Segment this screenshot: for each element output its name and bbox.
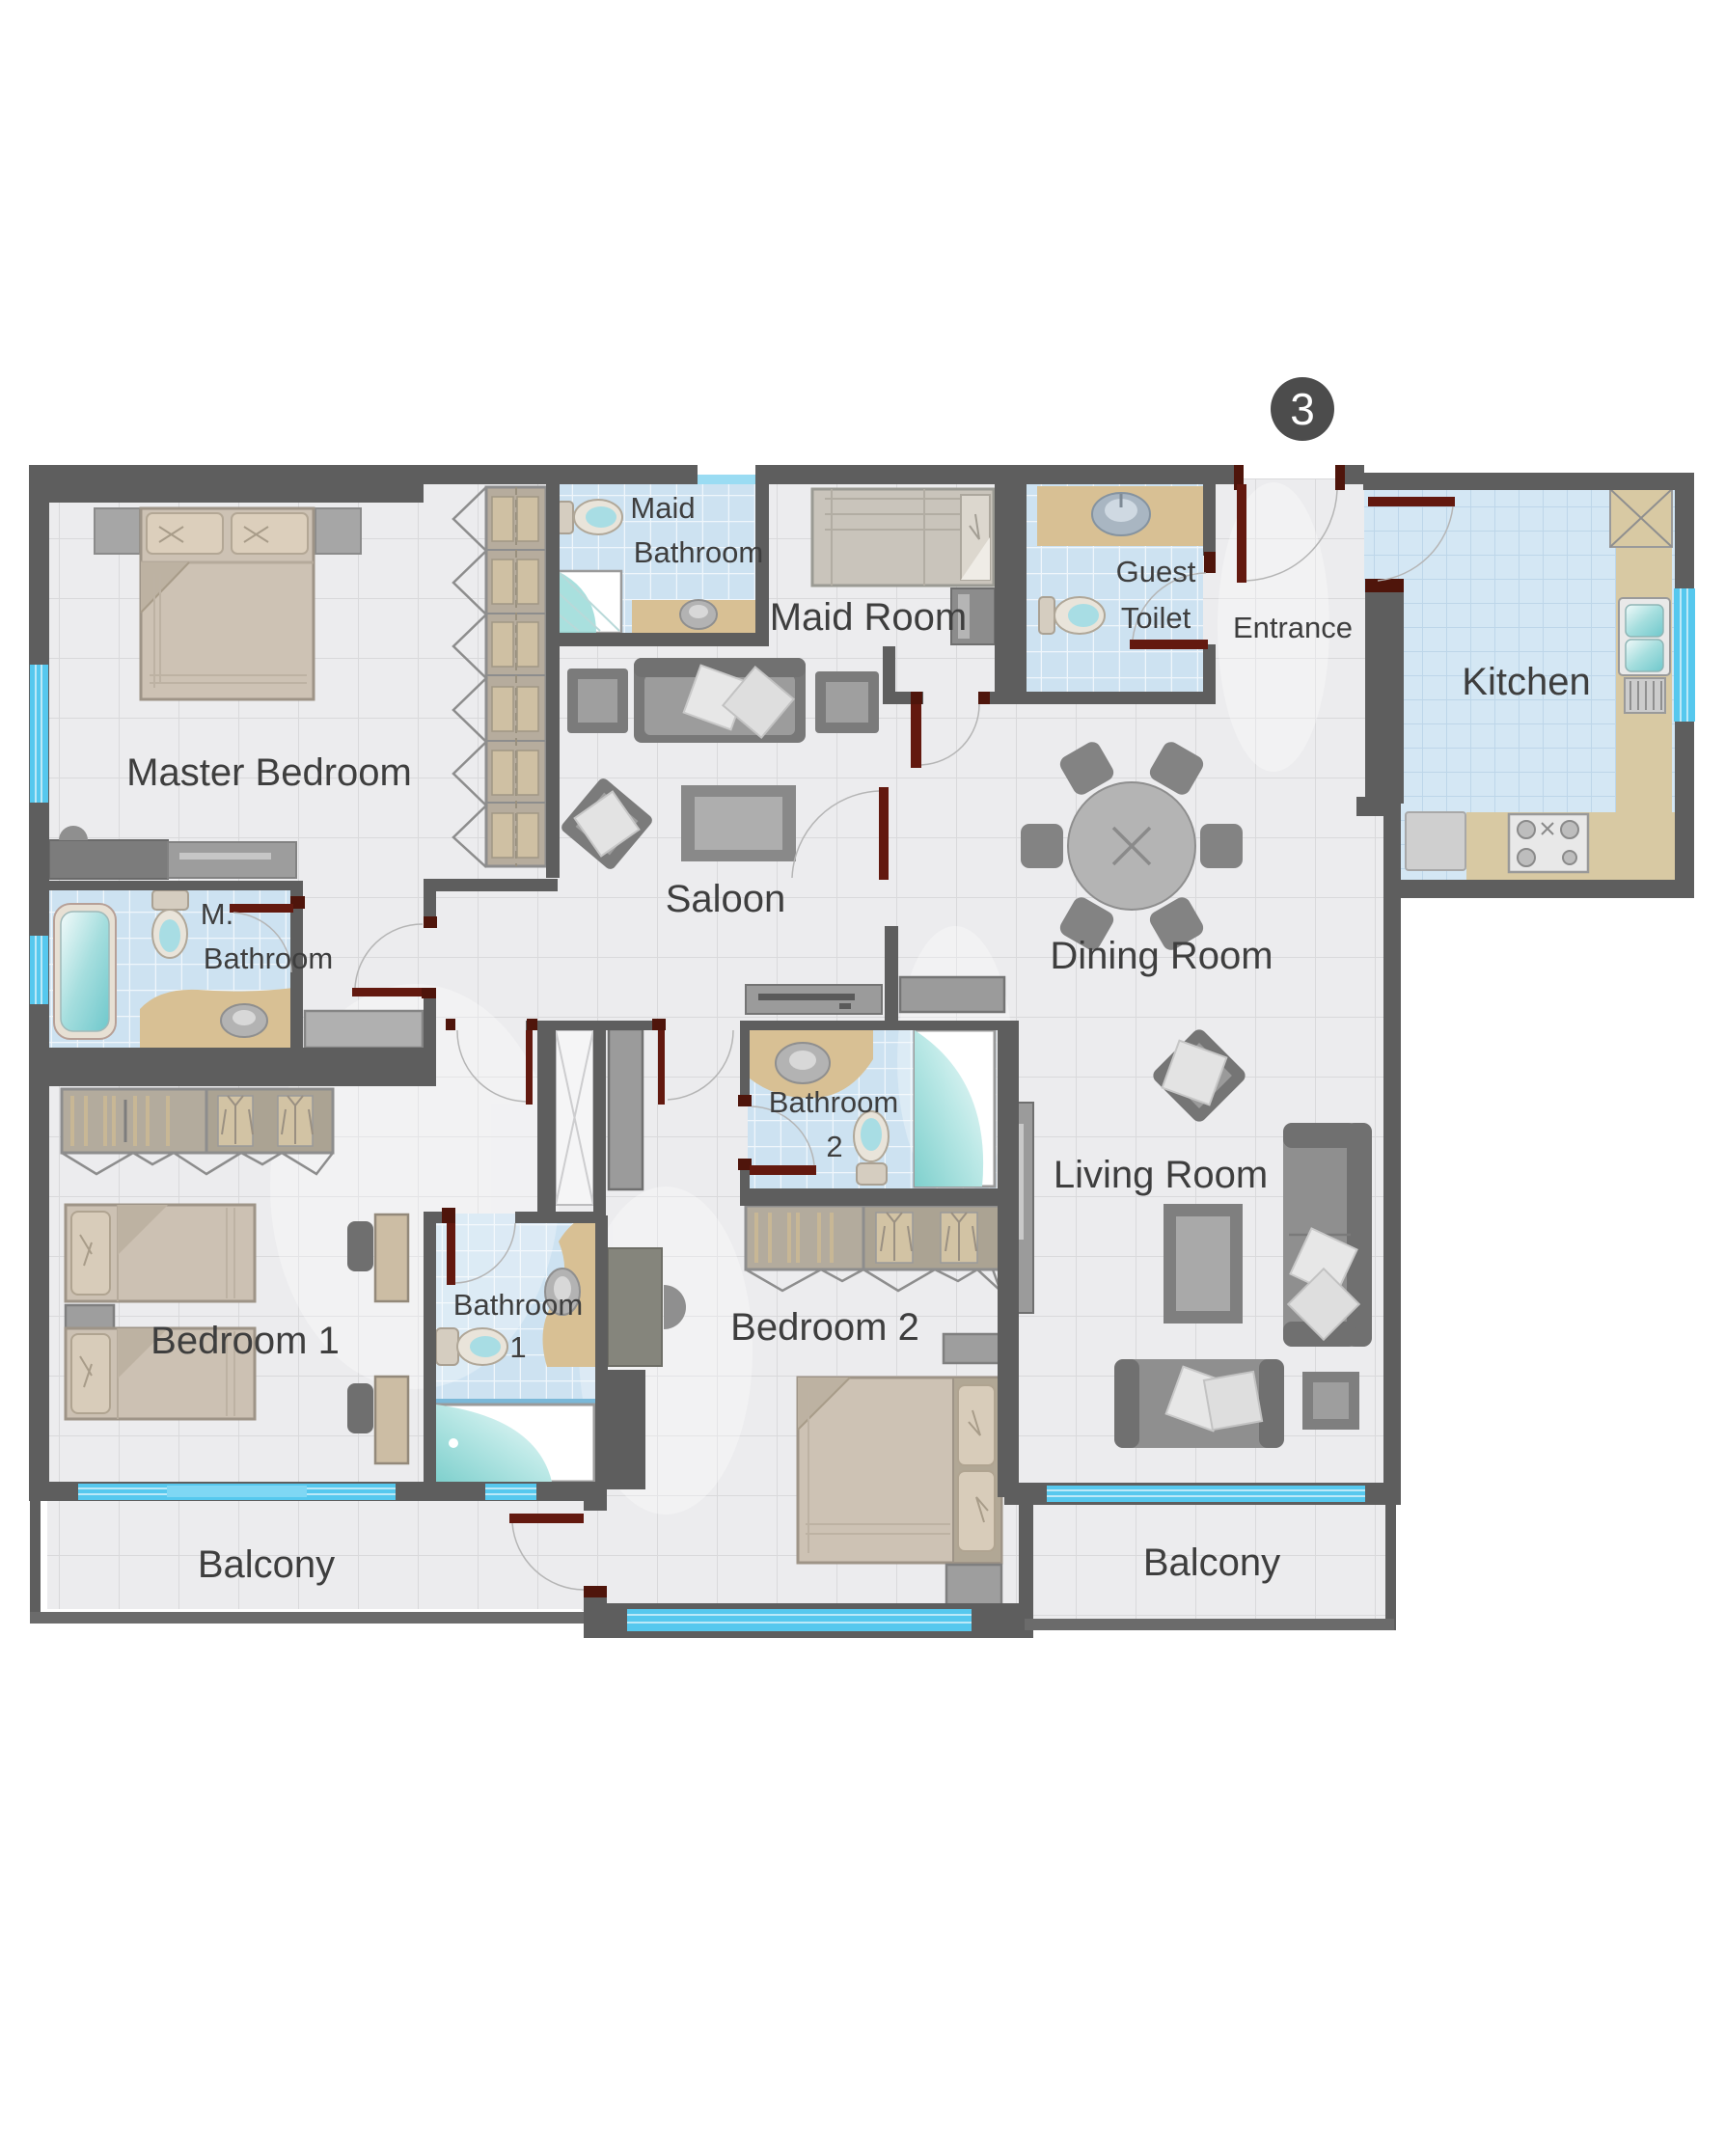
svg-text:Kitchen: Kitchen [1462, 661, 1590, 703]
svg-text:3: 3 [1290, 384, 1315, 434]
svg-text:Dining Room: Dining Room [1050, 935, 1273, 977]
svg-text:Bathroom: Bathroom [453, 1288, 583, 1322]
svg-text:Bedroom 1: Bedroom 1 [151, 1320, 340, 1362]
svg-text:M.: M. [201, 897, 233, 931]
svg-text:Bedroom 2: Bedroom 2 [730, 1306, 919, 1349]
svg-text:Living Room: Living Room [1054, 1154, 1268, 1196]
svg-text:Bathroom: Bathroom [634, 535, 763, 569]
svg-text:Master Bedroom: Master Bedroom [126, 751, 412, 794]
svg-text:Bathroom: Bathroom [204, 942, 333, 975]
svg-text:Balcony: Balcony [1143, 1542, 1280, 1584]
svg-text:Maid: Maid [630, 491, 695, 525]
svg-text:2: 2 [826, 1130, 842, 1163]
svg-text:Guest: Guest [1116, 555, 1196, 588]
svg-text:Bathroom: Bathroom [769, 1085, 898, 1119]
svg-text:Maid Room: Maid Room [770, 596, 968, 639]
svg-text:Balcony: Balcony [198, 1543, 335, 1586]
svg-text:1: 1 [509, 1330, 526, 1364]
svg-text:Entrance: Entrance [1233, 611, 1353, 644]
svg-text:Toilet: Toilet [1121, 601, 1191, 635]
svg-text:Saloon: Saloon [666, 878, 786, 920]
